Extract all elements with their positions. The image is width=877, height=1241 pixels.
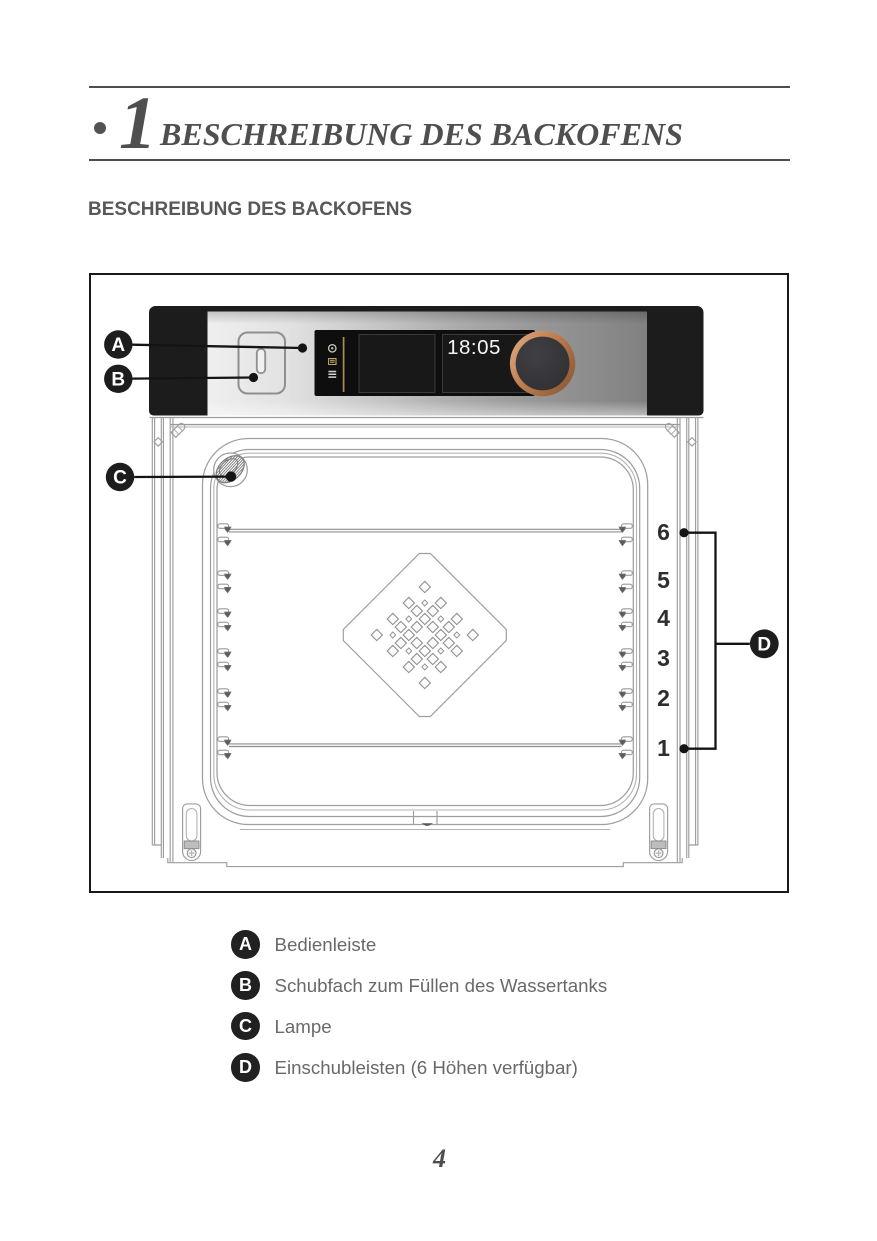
svg-text:3: 3 (657, 645, 670, 671)
svg-text:B: B (111, 369, 125, 390)
svg-text:A: A (111, 335, 125, 356)
svg-text:C: C (113, 468, 127, 489)
svg-text:6: 6 (657, 519, 670, 545)
svg-text:D: D (757, 634, 771, 655)
svg-text:18:05: 18:05 (447, 336, 501, 359)
svg-text:5: 5 (657, 567, 670, 593)
svg-text:1: 1 (657, 735, 670, 761)
svg-text:4: 4 (657, 605, 670, 631)
svg-text:2: 2 (657, 685, 670, 711)
